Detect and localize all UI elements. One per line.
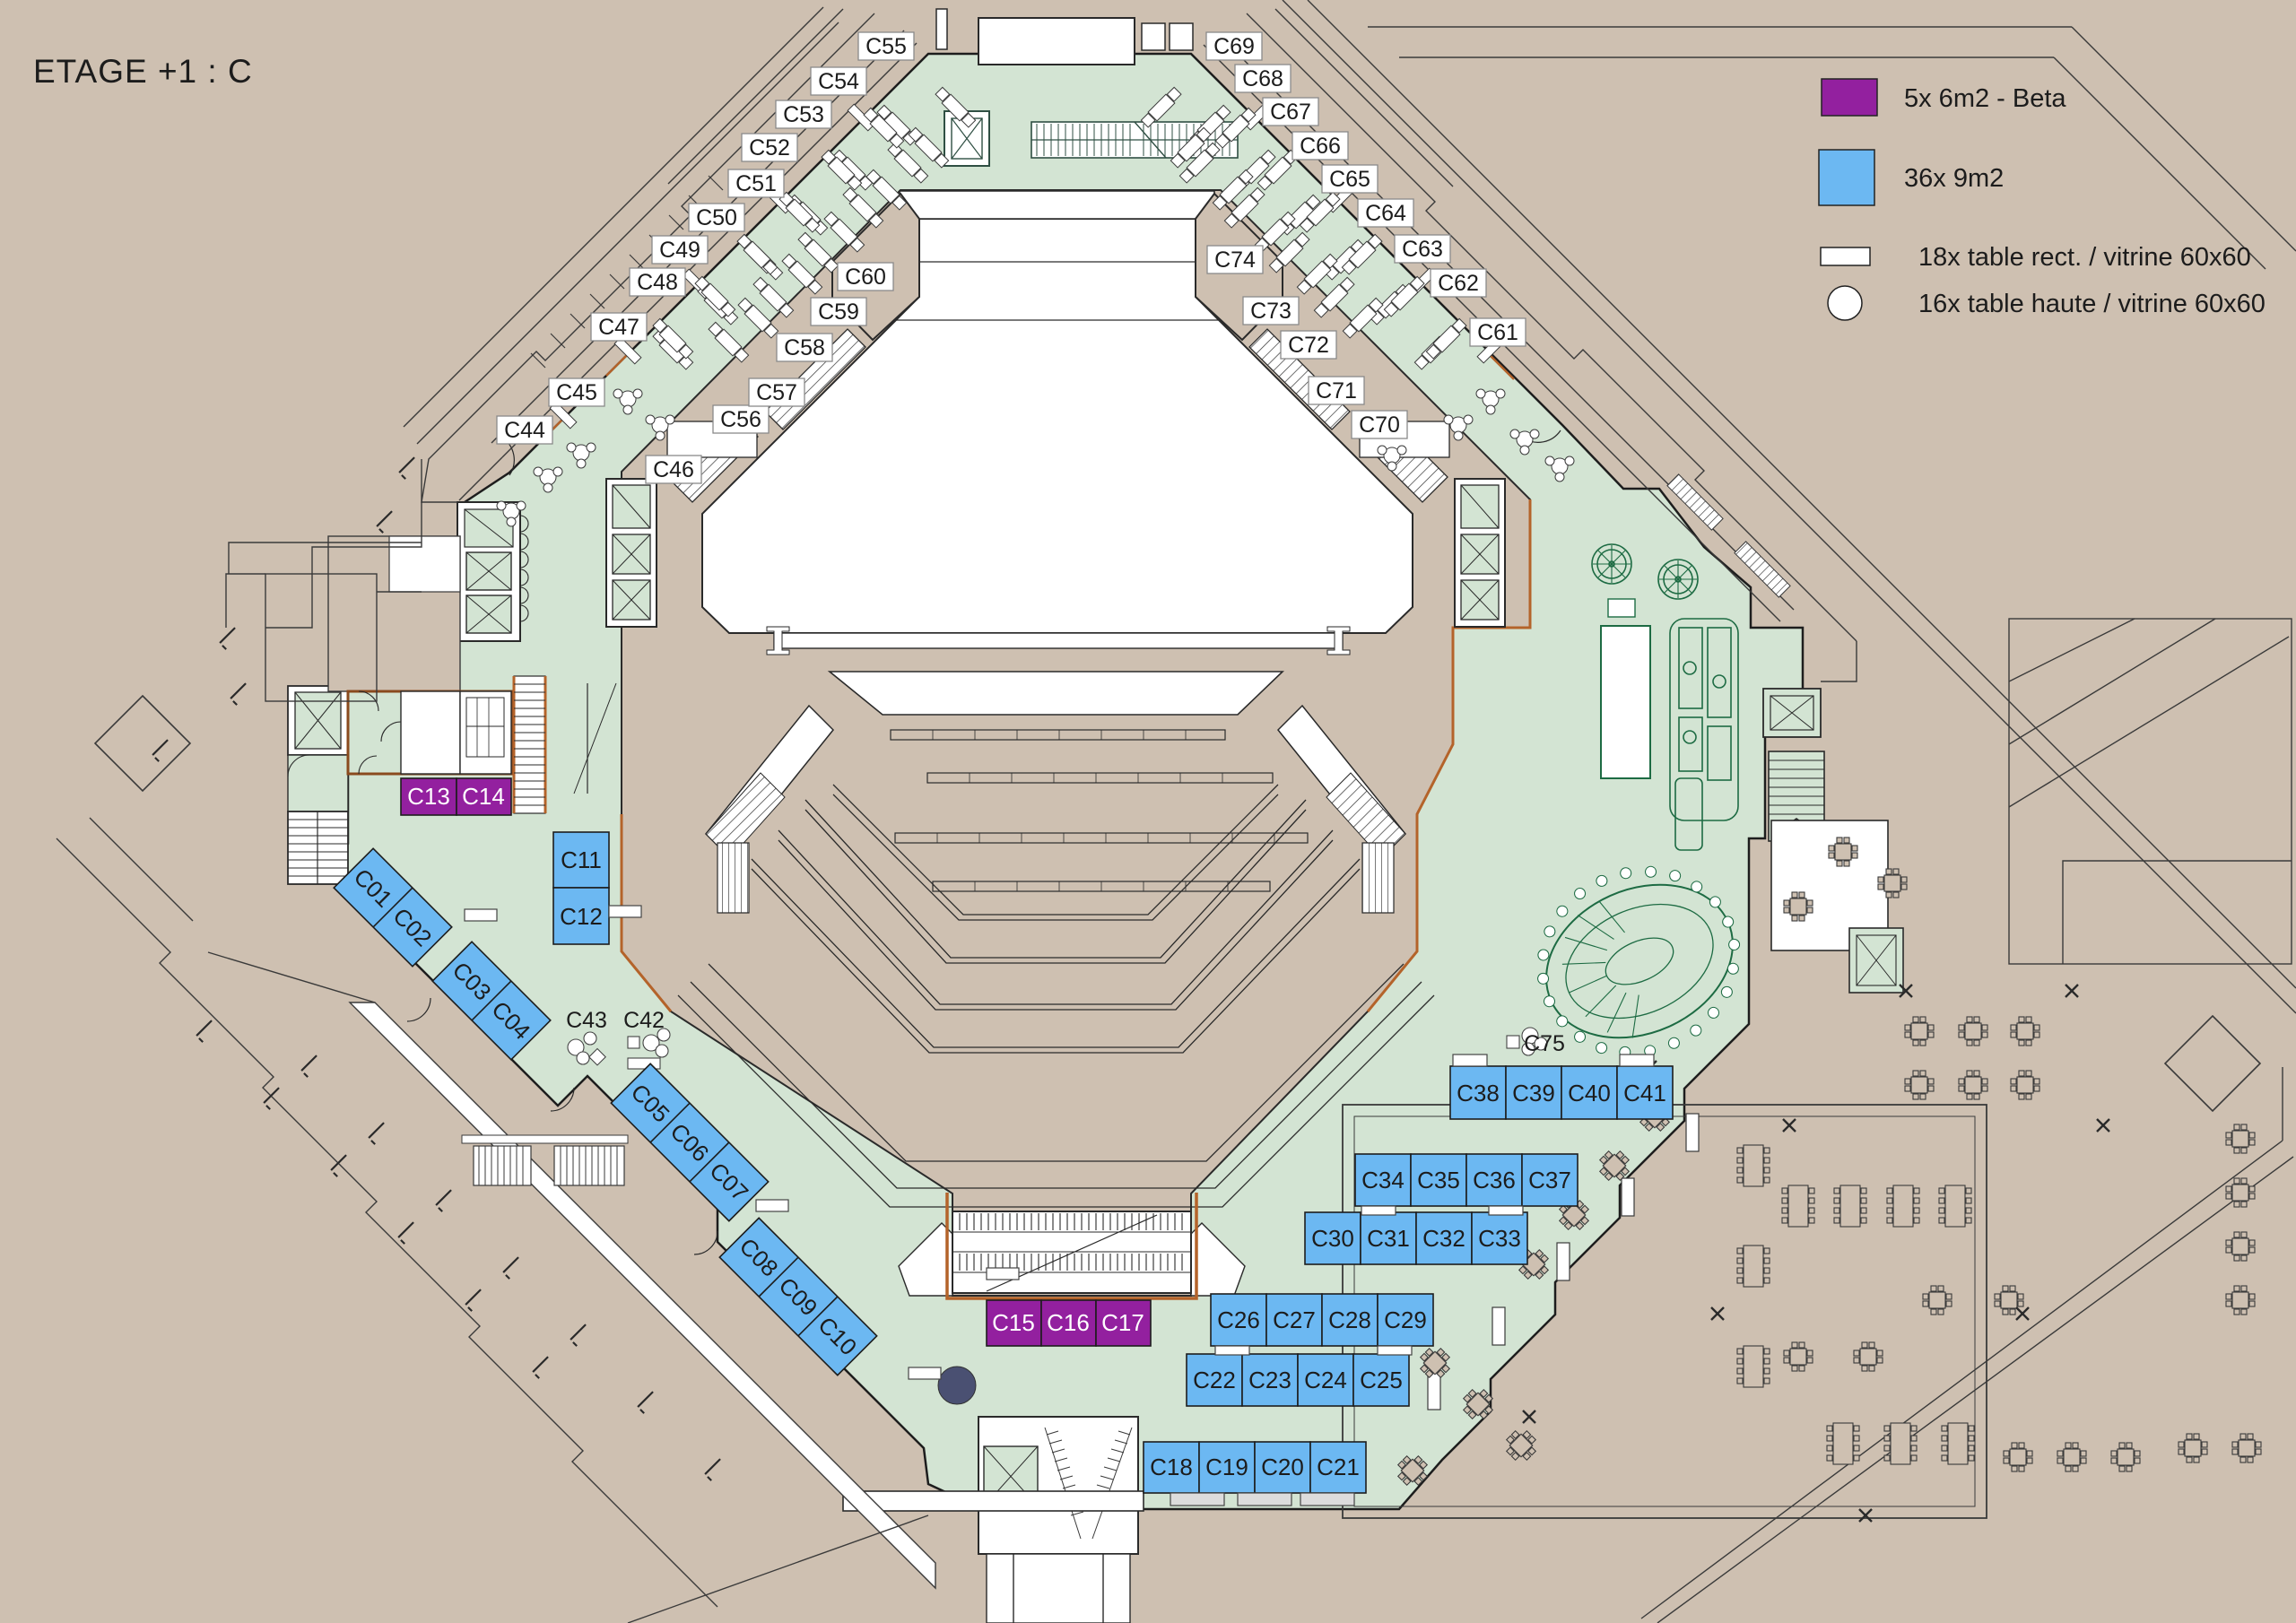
svg-text:C13: C13 <box>407 783 450 810</box>
svg-text:C34: C34 <box>1361 1167 1405 1193</box>
svg-text:C68: C68 <box>1242 66 1283 91</box>
svg-text:C44: C44 <box>504 418 545 443</box>
svg-text:C61: C61 <box>1477 320 1518 345</box>
svg-text:C22: C22 <box>1193 1367 1236 1393</box>
svg-text:C27: C27 <box>1273 1306 1316 1333</box>
svg-text:C35: C35 <box>1417 1167 1460 1193</box>
svg-text:C48: C48 <box>637 270 678 295</box>
svg-text:C14: C14 <box>462 783 505 810</box>
svg-text:C66: C66 <box>1300 134 1341 159</box>
svg-text:C29: C29 <box>1384 1306 1427 1333</box>
svg-text:C43: C43 <box>566 1008 607 1033</box>
svg-text:C18: C18 <box>1150 1454 1193 1480</box>
svg-text:C69: C69 <box>1213 34 1255 59</box>
svg-text:C16: C16 <box>1047 1309 1090 1336</box>
svg-text:C64: C64 <box>1365 201 1406 226</box>
svg-text:C57: C57 <box>756 380 797 405</box>
svg-text:C63: C63 <box>1402 237 1443 262</box>
svg-text:C52: C52 <box>749 135 790 161</box>
svg-text:C55: C55 <box>865 34 907 59</box>
svg-text:C37: C37 <box>1528 1167 1571 1193</box>
svg-text:C51: C51 <box>735 171 777 196</box>
svg-text:C59: C59 <box>818 299 859 325</box>
svg-text:C41: C41 <box>1623 1080 1666 1107</box>
svg-text:C30: C30 <box>1311 1225 1354 1252</box>
svg-text:C49: C49 <box>659 238 700 263</box>
svg-text:C54: C54 <box>818 69 859 94</box>
svg-text:C53: C53 <box>783 102 824 127</box>
svg-text:C56: C56 <box>720 407 761 432</box>
svg-text:36x 9m2: 36x 9m2 <box>1904 164 2004 193</box>
svg-text:5x 6m2 - Beta: 5x 6m2 - Beta <box>1904 84 2066 113</box>
svg-text:C36: C36 <box>1473 1167 1516 1193</box>
svg-text:C50: C50 <box>696 205 737 230</box>
svg-text:C73: C73 <box>1250 299 1291 324</box>
svg-text:C62: C62 <box>1438 271 1479 296</box>
svg-text:C60: C60 <box>845 265 886 290</box>
svg-text:C58: C58 <box>784 335 825 360</box>
svg-text:C39: C39 <box>1512 1080 1555 1107</box>
svg-text:C23: C23 <box>1248 1367 1291 1393</box>
svg-text:C19: C19 <box>1205 1454 1248 1480</box>
svg-text:C70: C70 <box>1359 412 1400 438</box>
svg-text:C21: C21 <box>1317 1454 1360 1480</box>
svg-text:C47: C47 <box>598 315 639 340</box>
svg-text:C12: C12 <box>560 903 603 930</box>
svg-text:C28: C28 <box>1328 1306 1371 1333</box>
svg-text:C33: C33 <box>1478 1225 1521 1252</box>
svg-text:16x table haute / vitrine 60x6: 16x table haute / vitrine 60x60 <box>1918 290 2266 318</box>
svg-text:C72: C72 <box>1288 333 1329 358</box>
svg-text:C24: C24 <box>1304 1367 1347 1393</box>
svg-text:C31: C31 <box>1367 1225 1410 1252</box>
svg-text:C42: C42 <box>623 1008 665 1033</box>
svg-text:C15: C15 <box>992 1309 1035 1336</box>
svg-text:ETAGE +1 : C: ETAGE +1 : C <box>33 53 253 90</box>
svg-text:C20: C20 <box>1261 1454 1304 1480</box>
svg-text:C46: C46 <box>653 457 694 482</box>
svg-text:C75: C75 <box>1524 1031 1565 1056</box>
svg-text:C11: C11 <box>561 846 602 873</box>
svg-text:C26: C26 <box>1217 1306 1260 1333</box>
svg-text:C71: C71 <box>1316 378 1357 404</box>
svg-text:18x table rect. / vitrine 60x6: 18x table rect. / vitrine 60x60 <box>1918 243 2251 272</box>
svg-text:C38: C38 <box>1457 1080 1500 1107</box>
svg-text:C65: C65 <box>1329 167 1370 192</box>
svg-text:C32: C32 <box>1422 1225 1465 1252</box>
svg-text:C67: C67 <box>1270 100 1311 125</box>
svg-text:C40: C40 <box>1568 1080 1611 1107</box>
svg-text:C45: C45 <box>556 380 597 405</box>
svg-text:C17: C17 <box>1101 1309 1144 1336</box>
svg-text:C74: C74 <box>1214 247 1256 273</box>
svg-text:C25: C25 <box>1360 1367 1403 1393</box>
